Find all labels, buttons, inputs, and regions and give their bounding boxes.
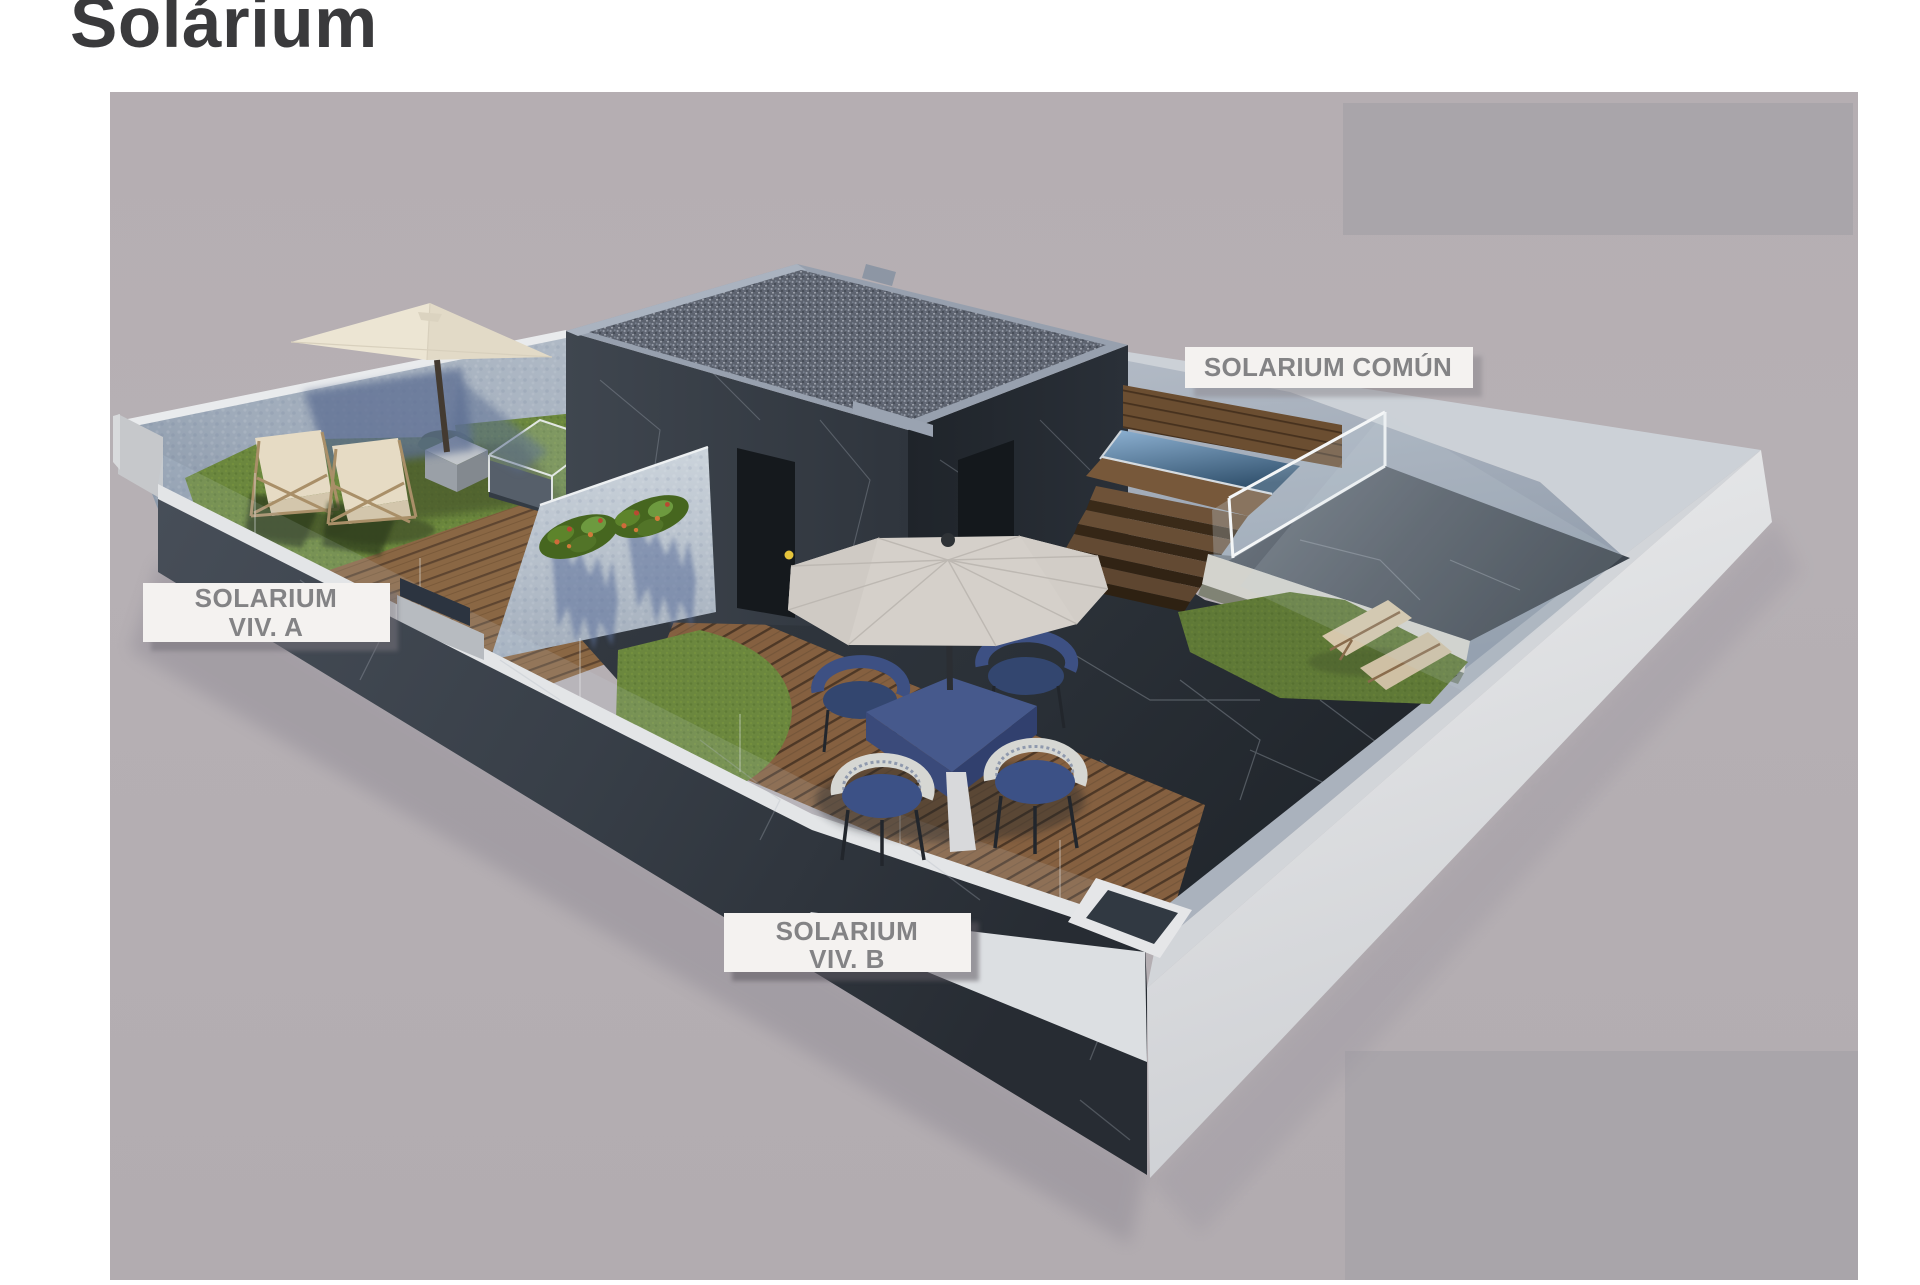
svg-text:VIV. A: VIV. A <box>229 612 304 642</box>
svg-text:SOLARIUM: SOLARIUM <box>195 583 338 613</box>
svg-text:SOLARIUM COMÚN: SOLARIUM COMÚN <box>1204 352 1452 382</box>
svg-text:SOLARIUM: SOLARIUM <box>776 916 919 946</box>
svg-text:VIV. B: VIV. B <box>809 944 885 974</box>
svg-text:Solárium: Solárium <box>70 0 378 63</box>
